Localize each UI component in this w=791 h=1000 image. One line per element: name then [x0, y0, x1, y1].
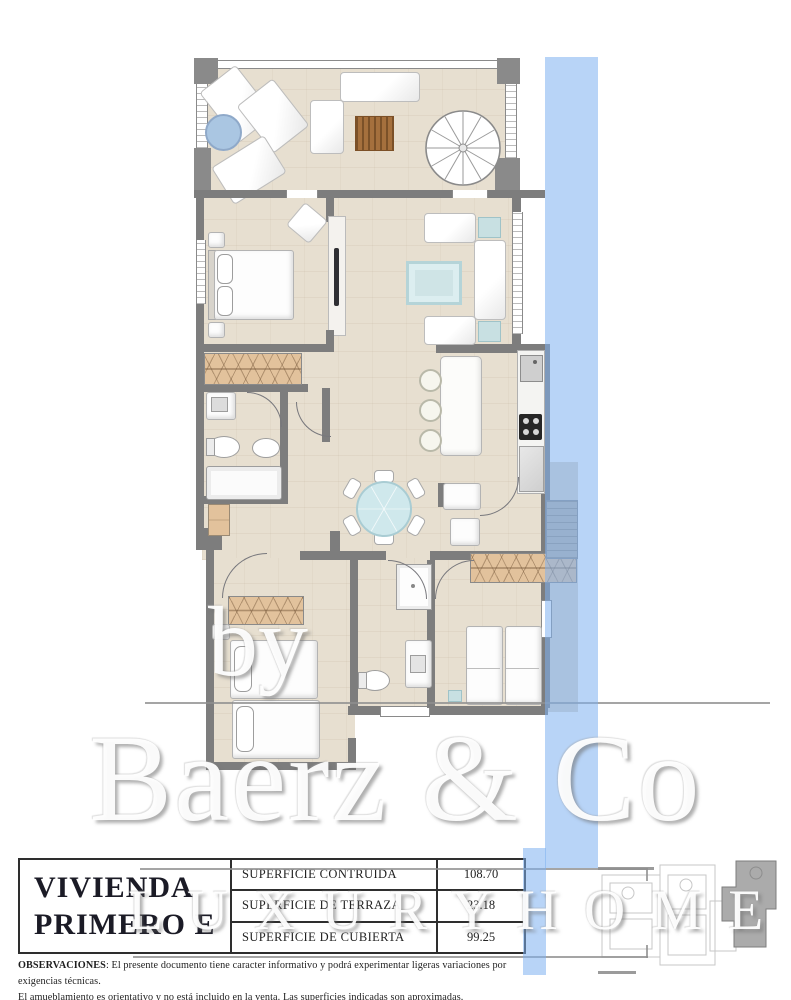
bathtub	[206, 466, 282, 500]
tv	[334, 248, 339, 306]
watermark-rule-elbow	[646, 868, 648, 881]
watermark-rule	[145, 702, 770, 704]
dwelling-title: VIVIENDA PRIMERO E	[20, 860, 232, 952]
pillow	[217, 254, 233, 284]
pillow	[236, 706, 254, 752]
surface-label: SUPERFICIE CONTRUIDA	[232, 860, 436, 889]
bar-stool	[419, 399, 442, 422]
toilet-tank	[206, 438, 215, 456]
dwelling-title-line1: VIVIENDA	[34, 869, 230, 907]
kitchen-island	[440, 356, 482, 456]
terrace-highlight-strip-narrow	[523, 848, 546, 975]
wall-left-lower	[206, 548, 214, 770]
watermark-brand: Baerz & Co	[0, 708, 791, 850]
wall-bed2-right	[350, 560, 358, 710]
entry-cabinet	[450, 518, 480, 546]
round-table	[205, 114, 242, 151]
side-table	[478, 217, 501, 238]
wardrobe-bedroom2	[228, 596, 304, 625]
burner	[533, 418, 539, 424]
bed-fold	[467, 668, 500, 669]
surface-label: SUPERFICIE DE CUBIERTA	[232, 923, 436, 952]
observations-note: OBSERVACIONES: El presente documento tie…	[18, 958, 518, 1000]
burner	[523, 418, 529, 424]
watermark-rule	[133, 956, 648, 958]
faucet-dot	[533, 360, 537, 364]
loveseat	[424, 316, 476, 345]
pillow	[234, 646, 252, 692]
loveseat	[424, 213, 476, 243]
single-bed	[466, 626, 503, 705]
bar-stool	[419, 429, 442, 452]
floor-plan-page: VIVIENDA PRIMERO E SUPERFICIE CONTRUIDA …	[0, 0, 791, 1000]
table-row: SUPERFICIE CONTRUIDA 108.70	[232, 860, 524, 891]
surface-label: SUPERFICIE DE TERRAZA	[232, 891, 436, 920]
table-row: SUPERFICIE DE CUBIERTA 99.25	[232, 923, 524, 952]
title-block: VIVIENDA PRIMERO E SUPERFICIE CONTRUIDA …	[18, 858, 526, 954]
observations-label: OBSERVACIONES	[18, 960, 106, 971]
bed-mat	[448, 690, 462, 702]
pillow	[217, 286, 233, 316]
nightstand	[208, 322, 225, 338]
dwelling-title-line2: PRIMERO E	[34, 906, 230, 944]
sink-basin	[211, 397, 228, 412]
wall	[194, 190, 545, 198]
terrace-chaise	[310, 100, 344, 154]
pillar	[194, 148, 211, 195]
table-row: SUPERFICIE DE TERRAZA 23.18	[232, 891, 524, 922]
wall-living-bottom	[436, 344, 520, 353]
wall-bath1-top	[202, 384, 308, 392]
burner	[523, 429, 529, 435]
wall	[512, 196, 521, 212]
bidet	[252, 438, 280, 458]
sofa	[474, 240, 506, 320]
nightstand	[212, 624, 230, 640]
watermark-rule	[140, 868, 648, 870]
terrace-right-window	[505, 84, 517, 158]
observations-line2: El amueblamiento es orientativo y no est…	[18, 992, 463, 1000]
rug	[406, 261, 462, 305]
wood-table	[355, 116, 394, 151]
entry-door	[380, 706, 430, 717]
wall	[348, 738, 356, 770]
dining-table	[356, 481, 412, 537]
surface-table: SUPERFICIE CONTRUIDA 108.70 SUPERFICIE D…	[232, 860, 524, 952]
wall-bottom-bed2	[206, 762, 356, 770]
spiral-staircase	[424, 109, 502, 187]
wall-hall-T-h	[300, 551, 386, 560]
terrace-railing	[204, 60, 510, 69]
sink-basin	[410, 655, 426, 673]
key-plan	[598, 853, 791, 998]
surface-value: 23.18	[436, 891, 524, 920]
side-table	[478, 321, 501, 342]
terrace-sofa	[340, 72, 420, 102]
pillar	[497, 58, 520, 84]
surface-value: 99.25	[436, 923, 524, 952]
entry-cabinet	[443, 483, 481, 510]
wood-shelf	[208, 504, 230, 536]
burner	[533, 429, 539, 435]
living-window	[512, 212, 523, 334]
wardrobe-master	[204, 353, 302, 385]
bed-fold	[506, 668, 539, 669]
wall-bottom-center	[348, 706, 548, 715]
terrace-highlight-strip	[545, 57, 598, 868]
kitchen-sink	[520, 355, 543, 382]
cooktop	[519, 414, 542, 440]
terrace-door-gap	[452, 190, 488, 198]
terrace-door-gap	[286, 190, 318, 198]
single-bed	[505, 626, 542, 705]
toilet-tank	[358, 672, 367, 689]
wall-bed1-bottom	[202, 344, 334, 352]
bar-stool	[419, 369, 442, 392]
watermark-rule-elbow	[646, 945, 648, 958]
nightstand	[208, 232, 225, 248]
surface-value: 108.70	[436, 860, 524, 889]
bedroom-window	[196, 240, 206, 304]
kitchen-cabinet	[519, 446, 544, 492]
